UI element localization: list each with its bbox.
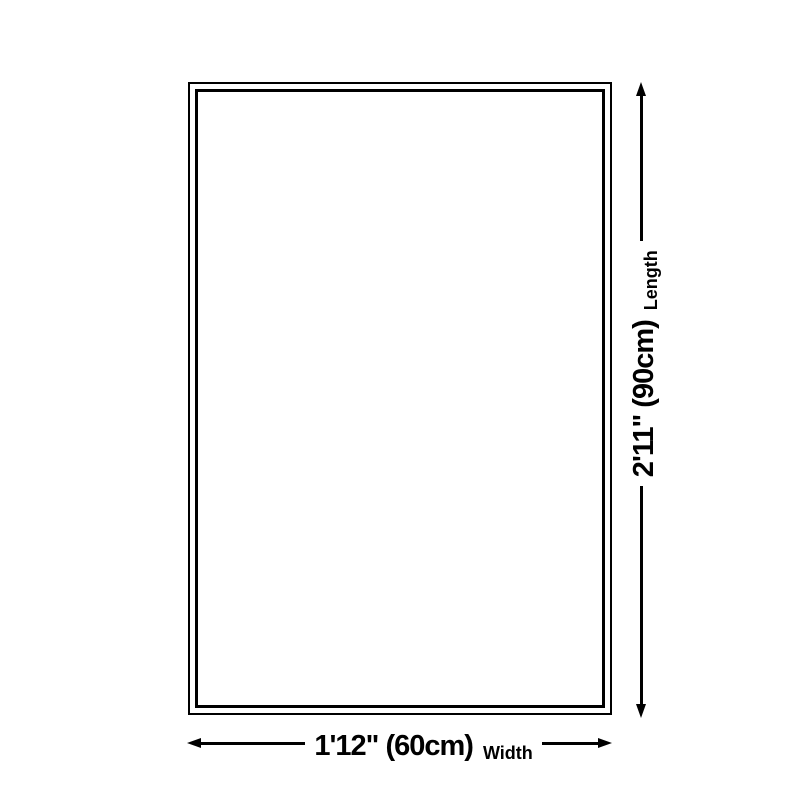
length-value: 2'11" (90cm) xyxy=(630,320,659,477)
length-label: Length xyxy=(642,250,660,310)
width-dimension-line-left xyxy=(201,742,305,745)
length-dimension-line-bottom xyxy=(640,486,643,704)
length-dimension-label: 2'11" (90cm) Length xyxy=(630,241,659,486)
width-dimension-line-right xyxy=(542,742,598,745)
length-dimension-line-top xyxy=(640,96,643,241)
width-dimension-label: 1'12" (60cm) Width xyxy=(305,732,541,761)
product-outline-inner xyxy=(195,89,605,708)
arrow-up-icon xyxy=(636,82,646,96)
arrow-down-icon xyxy=(636,704,646,718)
arrow-left-icon xyxy=(187,738,201,748)
width-value: 1'12" (60cm) xyxy=(314,732,473,761)
width-label: Width xyxy=(483,744,533,762)
width-dimension: 1'12" (60cm) Width xyxy=(187,721,612,765)
product-outline xyxy=(188,82,612,715)
length-dimension: 2'11" (90cm) Length xyxy=(619,82,663,718)
size-diagram-canvas: 1'12" (60cm) Width 2'11" (90cm) Length xyxy=(0,0,800,800)
arrow-right-icon xyxy=(598,738,612,748)
